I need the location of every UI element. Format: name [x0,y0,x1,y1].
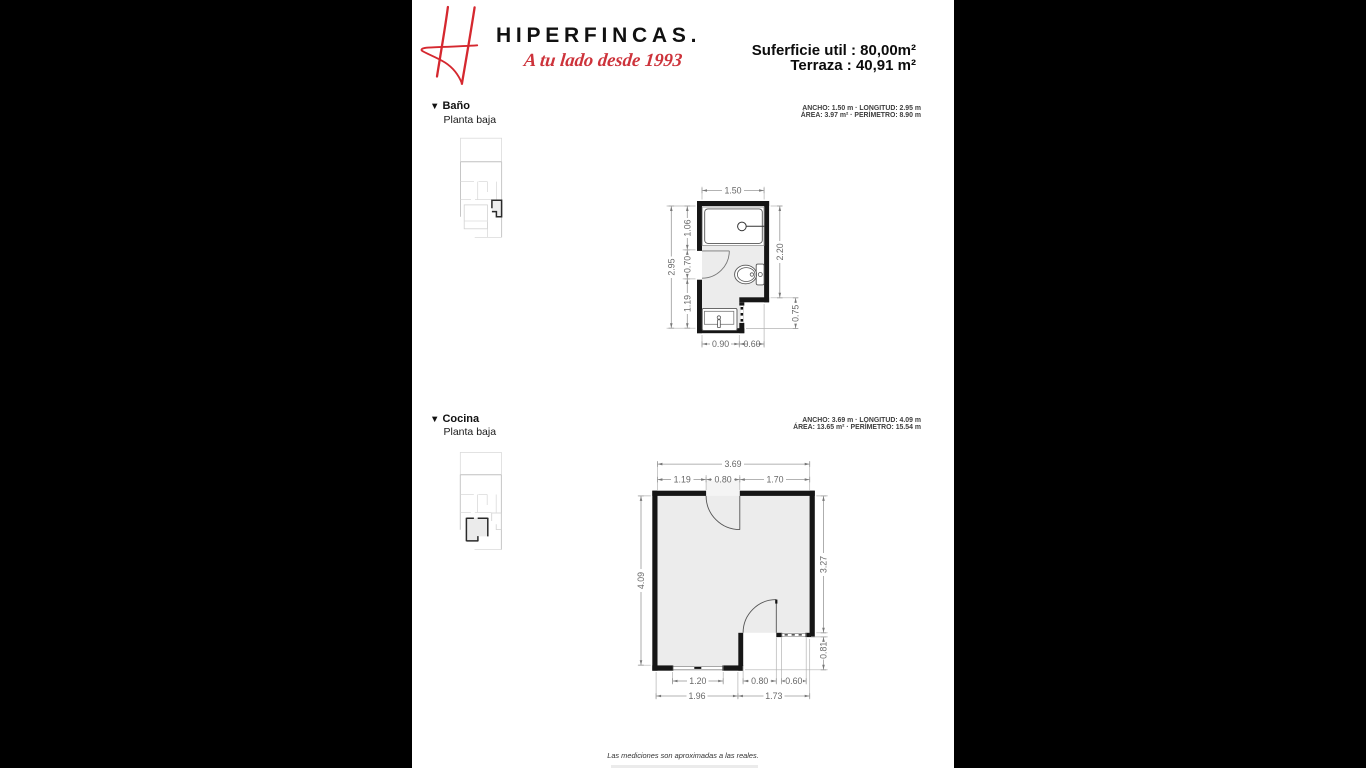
svg-text:1.50: 1.50 [724,186,741,196]
svg-text:4.09: 4.09 [636,572,646,589]
svg-text:1.20: 1.20 [689,676,706,686]
svg-text:3.69: 3.69 [724,459,741,469]
svg-text:0.70: 0.70 [682,256,692,273]
svg-text:3.27: 3.27 [819,556,829,573]
svg-text:0.90: 0.90 [712,339,729,349]
svg-text:1.96: 1.96 [688,691,705,701]
svg-text:0.80: 0.80 [751,676,768,686]
svg-text:1.73: 1.73 [765,691,782,701]
svg-text:0.81: 0.81 [819,642,829,659]
svg-text:0.80: 0.80 [715,475,732,485]
svg-text:0.60: 0.60 [743,339,760,349]
svg-text:1.19: 1.19 [674,475,691,485]
svg-text:2.20: 2.20 [775,243,785,260]
svg-text:1.19: 1.19 [682,295,692,312]
svg-text:1.70: 1.70 [766,475,783,485]
svg-text:2.95: 2.95 [666,258,676,275]
svg-text:1.06: 1.06 [682,219,692,236]
svg-text:0.75: 0.75 [791,305,801,322]
svg-text:0.60: 0.60 [785,676,802,686]
